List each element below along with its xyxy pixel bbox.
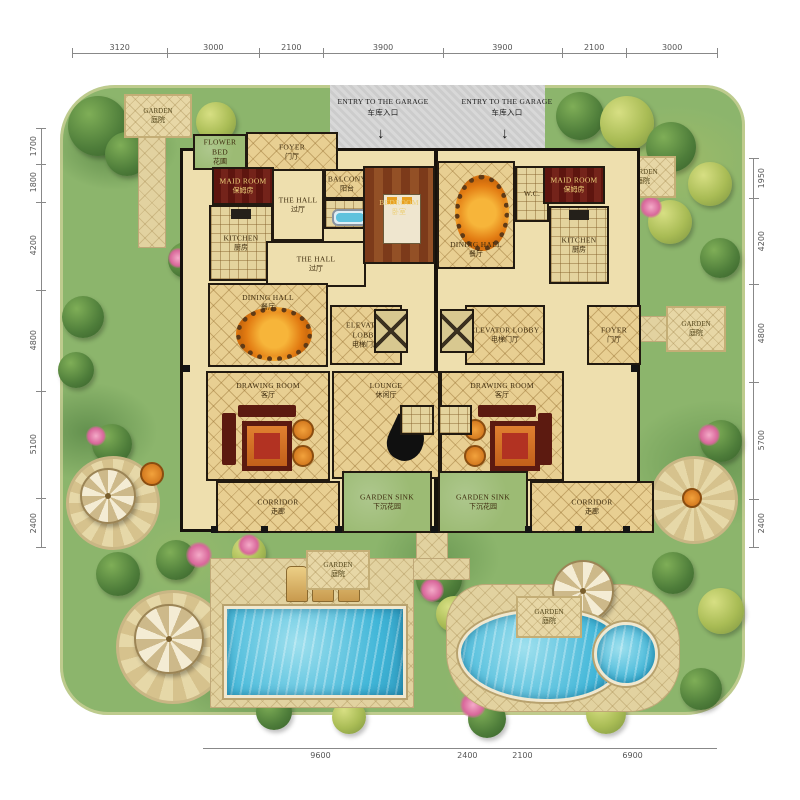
garage-entry-en: ENTRY TO THE GARAGE bbox=[461, 97, 552, 106]
umbrella-icon bbox=[134, 604, 204, 674]
swimming-pool bbox=[224, 606, 406, 698]
dimension-segment: 1700 bbox=[26, 128, 42, 164]
dimension-chain-right: 1950 4200 4800 5700 2400 bbox=[753, 158, 768, 548]
garden-label: GARDEN庭院 bbox=[143, 107, 172, 125]
room-bedroom: BEDROOM卧室 bbox=[363, 166, 435, 264]
dimension-value: 3000 bbox=[662, 43, 682, 52]
dining-table-icon bbox=[455, 175, 509, 251]
dimension-value: 5100 bbox=[29, 434, 38, 454]
dimension-value: 2400 bbox=[29, 513, 38, 533]
room-corridor-right: CORRIDOR走廊 bbox=[530, 481, 654, 533]
column bbox=[261, 526, 268, 533]
dimension-segment: 2400 bbox=[753, 499, 769, 548]
dimension-segment: 3900 bbox=[443, 38, 562, 54]
room-maid-right: MAID ROOM保姆房 bbox=[543, 166, 605, 204]
garage-entry-zh: 车库入口 bbox=[491, 108, 522, 117]
room-dining-left: DINING HALL餐厅 bbox=[208, 283, 328, 367]
garage-entry-label: ENTRY TO THE GARAGE 车库入口 bbox=[328, 96, 438, 119]
dining-table-icon bbox=[236, 307, 312, 361]
elevator-shaft bbox=[440, 309, 474, 353]
column bbox=[335, 526, 342, 533]
column bbox=[623, 526, 630, 533]
umbrella-icon bbox=[80, 468, 136, 524]
dimension-chain-left: 1700 1800 4200 4800 5100 2400 bbox=[26, 128, 41, 548]
room-elevator-lobby-right: ELEVATOR LOBBY电梯门厅 bbox=[465, 305, 545, 365]
tree-icon bbox=[62, 296, 104, 338]
column bbox=[525, 526, 532, 533]
room-maid-left: MAID ROOM保姆房 bbox=[212, 167, 274, 205]
dimension-chain-top: 3120 3000 2100 3900 3900 2100 3000 bbox=[72, 38, 718, 53]
rug-icon bbox=[242, 421, 292, 471]
dimension-value: 6900 bbox=[622, 751, 642, 760]
dimension-segment: 4200 bbox=[26, 202, 42, 290]
room-corridor-left: CORRIDOR走廊 bbox=[216, 481, 340, 533]
flower-icon bbox=[186, 542, 212, 568]
dimension-value: 4800 bbox=[757, 323, 766, 343]
room-dining-right: DINING HALL餐厅 bbox=[437, 161, 515, 269]
dimension-chain-bottom: 9600 2400 2100 6900 bbox=[203, 748, 717, 763]
dimension-value: 3900 bbox=[492, 43, 512, 52]
garage-entry-en: ENTRY TO THE GARAGE bbox=[337, 97, 428, 106]
room-kitchen-left: KITCHEN厨房 bbox=[209, 205, 273, 281]
room-kitchen-right: KITCHEN厨房 bbox=[549, 206, 609, 284]
dimension-value: 3000 bbox=[203, 43, 223, 52]
flower-icon bbox=[640, 196, 662, 218]
dimension-segment: 2400 bbox=[438, 748, 497, 763]
room-hall-upper-left: THE HALL过厅 bbox=[272, 169, 324, 241]
tree-icon bbox=[680, 668, 722, 710]
dimension-value: 2100 bbox=[512, 751, 532, 760]
room-garden-sink-left: GARDEN SINK下沉花园 bbox=[342, 471, 432, 533]
dimension-value: 9600 bbox=[310, 751, 330, 760]
dimension-segment: 1800 bbox=[26, 164, 42, 202]
dimension-value: 1800 bbox=[29, 172, 38, 192]
stove-icon bbox=[231, 209, 251, 219]
dimension-value: 2100 bbox=[584, 43, 604, 52]
column bbox=[211, 526, 218, 533]
dimension-segment: 3120 bbox=[72, 38, 167, 54]
tree-icon bbox=[688, 162, 732, 206]
garden-table-icon bbox=[140, 462, 164, 486]
down-arrow-icon: ↓ bbox=[501, 126, 509, 141]
dimension-value: 5700 bbox=[757, 430, 766, 450]
garden-square: GARDEN庭院 bbox=[306, 550, 370, 590]
dimension-value: 1700 bbox=[29, 136, 38, 156]
building-footprint: FLOWER BED花圃 FOYER门厅 MAID ROOM保姆房 THE HA… bbox=[180, 148, 640, 532]
column bbox=[575, 526, 582, 533]
garden-label: GARDEN庭院 bbox=[534, 608, 563, 626]
dimension-value: 2100 bbox=[281, 43, 301, 52]
garden-square: GARDEN庭院 bbox=[124, 94, 192, 138]
tree-icon bbox=[58, 352, 94, 388]
flower-icon bbox=[420, 578, 444, 602]
dimension-value: 1950 bbox=[757, 168, 766, 188]
dimension-value: 3120 bbox=[110, 43, 130, 52]
room-flower-bed: FLOWER BED花圃 bbox=[193, 134, 247, 170]
dimension-segment: 2400 bbox=[26, 498, 42, 548]
dimension-segment: 1950 bbox=[753, 158, 769, 198]
dimension-segment: 6900 bbox=[548, 748, 717, 763]
elevator-shaft bbox=[374, 309, 408, 353]
room-wc-center-right bbox=[438, 405, 472, 435]
column bbox=[631, 365, 638, 372]
dimension-value: 2400 bbox=[757, 513, 766, 533]
rug-icon bbox=[490, 421, 540, 471]
dimension-segment: 9600 bbox=[203, 748, 438, 763]
tree-icon bbox=[556, 92, 604, 140]
sofa-icon bbox=[538, 413, 552, 465]
dimension-segment: 4200 bbox=[753, 198, 769, 284]
dimension-segment: 4800 bbox=[753, 284, 769, 382]
sofa-icon bbox=[222, 413, 236, 465]
down-arrow-icon: ↓ bbox=[377, 126, 385, 141]
dimension-segment: 2100 bbox=[562, 38, 626, 54]
garden-square: GARDEN庭院 bbox=[516, 596, 582, 638]
tree-icon bbox=[96, 552, 140, 596]
tree-icon bbox=[652, 552, 694, 594]
dimension-value: 3900 bbox=[373, 43, 393, 52]
sofa-icon bbox=[238, 405, 296, 417]
flower-icon bbox=[238, 534, 260, 556]
stove-icon bbox=[569, 210, 589, 220]
room-drawing-left: DRAWING ROOM客厅 bbox=[206, 371, 330, 481]
lounge-chair-icon bbox=[286, 566, 308, 602]
garden-label: GARDEN庭院 bbox=[323, 561, 352, 579]
garden-table-icon bbox=[682, 488, 702, 508]
room-garden-sink-right: GARDEN SINK下沉花园 bbox=[438, 471, 528, 533]
armchair-icon bbox=[292, 419, 314, 441]
dimension-segment: 3000 bbox=[167, 38, 259, 54]
dimension-segment: 5100 bbox=[26, 391, 42, 498]
armchair-icon bbox=[464, 445, 486, 467]
garden-label: GARDEN庭院 bbox=[681, 320, 710, 338]
armchair-icon bbox=[292, 445, 314, 467]
dimension-segment: 4800 bbox=[26, 290, 42, 391]
dimension-segment: 2100 bbox=[259, 38, 323, 54]
column bbox=[431, 526, 438, 533]
sofa-icon bbox=[478, 405, 536, 417]
dimension-value: 4800 bbox=[29, 330, 38, 350]
tree-icon bbox=[700, 238, 740, 278]
dimension-value: 2400 bbox=[457, 751, 477, 760]
dimension-segment: 5700 bbox=[753, 382, 769, 499]
dimension-value: 4200 bbox=[29, 235, 38, 255]
flower-icon bbox=[86, 426, 106, 446]
dimension-segment: 2100 bbox=[497, 748, 548, 763]
garage-entry-label: ENTRY TO THE GARAGE 车库入口 bbox=[452, 96, 562, 119]
garage-entry-zh: 车库入口 bbox=[367, 108, 398, 117]
spa-pool bbox=[594, 622, 658, 686]
dimension-segment: 3900 bbox=[323, 38, 442, 54]
column bbox=[183, 365, 190, 372]
flower-icon bbox=[698, 424, 720, 446]
bed-icon bbox=[383, 194, 421, 244]
dimension-value: 4200 bbox=[757, 231, 766, 251]
room-hall-lower-left: THE HALL过厅 bbox=[266, 241, 366, 287]
dimension-segment: 3000 bbox=[626, 38, 718, 54]
garden-path bbox=[138, 134, 166, 248]
room-foyer-right: FOYER门厅 bbox=[587, 305, 641, 365]
garden-path bbox=[416, 530, 448, 560]
room-foyer-top: FOYER门厅 bbox=[246, 132, 338, 172]
garden-square: GARDEN庭院 bbox=[666, 306, 726, 352]
tree-icon bbox=[698, 588, 744, 634]
room-wc-center-left bbox=[400, 405, 434, 435]
